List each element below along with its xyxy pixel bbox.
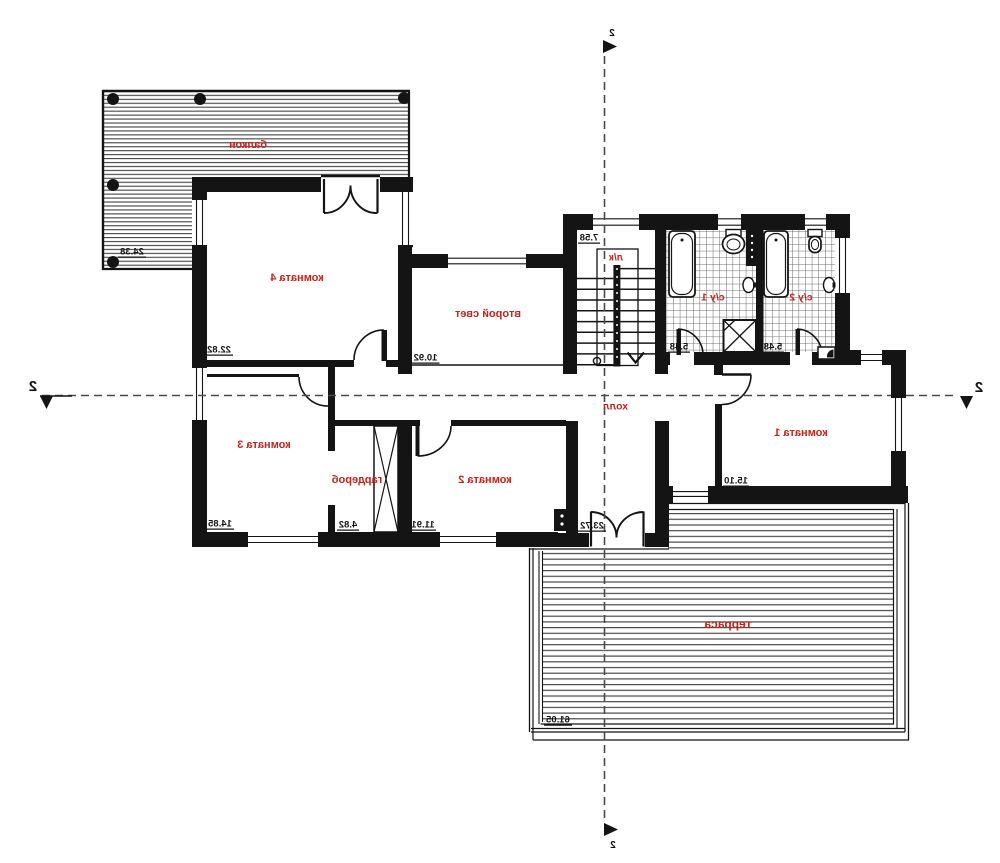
svg-text:гардероб: гардероб <box>332 474 383 486</box>
svg-text:терраса: терраса <box>704 617 752 631</box>
svg-text:второй свет: второй свет <box>454 308 521 320</box>
svg-text:комната 1: комната 1 <box>774 427 828 439</box>
svg-text:комната 4: комната 4 <box>269 272 323 284</box>
svg-text:2: 2 <box>609 28 615 39</box>
svg-text:комната 2: комната 2 <box>458 474 512 486</box>
svg-text:холл: холл <box>603 401 628 413</box>
svg-text:2: 2 <box>610 840 616 851</box>
svg-text:2: 2 <box>975 379 983 396</box>
svg-text:11.91: 11.91 <box>411 520 435 531</box>
svg-text:10.92: 10.92 <box>414 353 438 364</box>
svg-text:5.48: 5.48 <box>764 342 783 353</box>
svg-text:22.82: 22.82 <box>207 345 231 356</box>
svg-text:с/у 2: с/у 2 <box>789 292 813 304</box>
svg-text:5.48: 5.48 <box>670 342 689 353</box>
svg-text:4.82: 4.82 <box>339 520 358 531</box>
svg-text:61.05: 61.05 <box>545 715 569 726</box>
svg-text:л/к: л/к <box>608 253 623 264</box>
svg-text:7.58: 7.58 <box>580 233 599 244</box>
svg-text:балкон: балкон <box>229 139 267 151</box>
svg-text:15.10: 15.10 <box>724 476 748 487</box>
svg-text:24.38: 24.38 <box>120 247 144 258</box>
svg-text:23.72: 23.72 <box>580 521 604 532</box>
svg-text:14.85: 14.85 <box>207 519 231 530</box>
svg-text:2: 2 <box>29 378 37 395</box>
svg-text:с/у 1: с/у 1 <box>701 292 725 304</box>
svg-text:комната 3: комната 3 <box>237 439 291 451</box>
